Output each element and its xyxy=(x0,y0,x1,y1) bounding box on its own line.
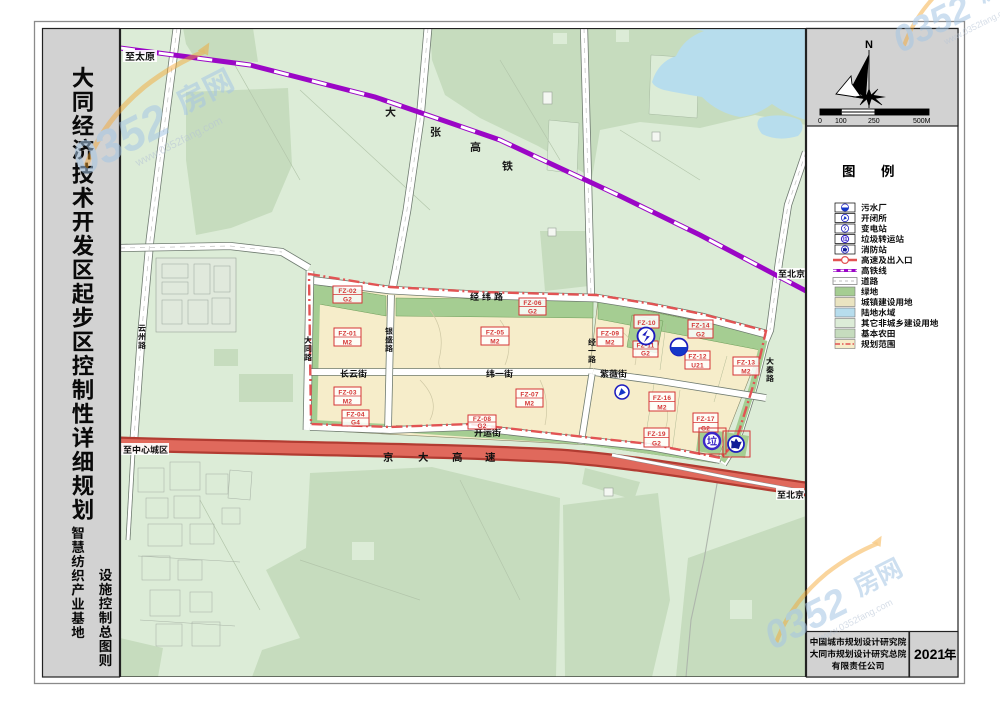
svg-text:100: 100 xyxy=(835,118,847,125)
svg-text:FZ-14: FZ-14 xyxy=(691,323,710,330)
svg-text:M2: M2 xyxy=(490,339,500,346)
svg-text:FZ-09: FZ-09 xyxy=(601,331,620,338)
svg-text:FZ-10: FZ-10 xyxy=(637,320,656,327)
svg-text:FZ-12: FZ-12 xyxy=(688,354,707,361)
svg-text:FZ-19: FZ-19 xyxy=(647,431,666,438)
svg-text:FZ-03: FZ-03 xyxy=(338,390,357,397)
svg-text:M2: M2 xyxy=(343,340,353,347)
svg-text:U21: U21 xyxy=(691,363,704,370)
svg-text:G2: G2 xyxy=(528,309,537,316)
svg-text:M2: M2 xyxy=(525,401,535,408)
svg-text:500M: 500M xyxy=(913,118,931,125)
svg-text:G2: G2 xyxy=(701,426,710,433)
svg-text:N: N xyxy=(865,39,873,51)
svg-text:FZ-06: FZ-06 xyxy=(523,300,542,307)
svg-text:G2: G2 xyxy=(696,332,705,339)
svg-text:G2: G2 xyxy=(477,423,486,430)
svg-text:FZ-16: FZ-16 xyxy=(653,395,672,402)
svg-text:M2: M2 xyxy=(741,369,751,376)
svg-text:G2: G2 xyxy=(652,441,661,448)
svg-text:2021: 2021 xyxy=(914,646,945,662)
svg-text:FZ-17: FZ-17 xyxy=(696,416,715,423)
svg-text:M2: M2 xyxy=(657,405,667,412)
svg-text:M2: M2 xyxy=(343,399,353,406)
svg-text:FZ-08: FZ-08 xyxy=(473,416,492,423)
svg-text:0: 0 xyxy=(818,118,822,125)
svg-text:250: 250 xyxy=(868,118,880,125)
svg-text:G2: G2 xyxy=(343,297,352,304)
svg-text:FZ-01: FZ-01 xyxy=(338,331,357,338)
svg-text:FZ-05: FZ-05 xyxy=(486,330,505,337)
svg-text:FZ-04: FZ-04 xyxy=(346,412,365,419)
svg-text:G2: G2 xyxy=(641,351,650,358)
svg-text:FZ-13: FZ-13 xyxy=(737,360,756,367)
svg-text:M2: M2 xyxy=(605,340,615,347)
svg-text:G4: G4 xyxy=(351,420,360,427)
svg-text:FZ-07: FZ-07 xyxy=(520,392,539,399)
svg-text:FZ-02: FZ-02 xyxy=(338,288,357,295)
